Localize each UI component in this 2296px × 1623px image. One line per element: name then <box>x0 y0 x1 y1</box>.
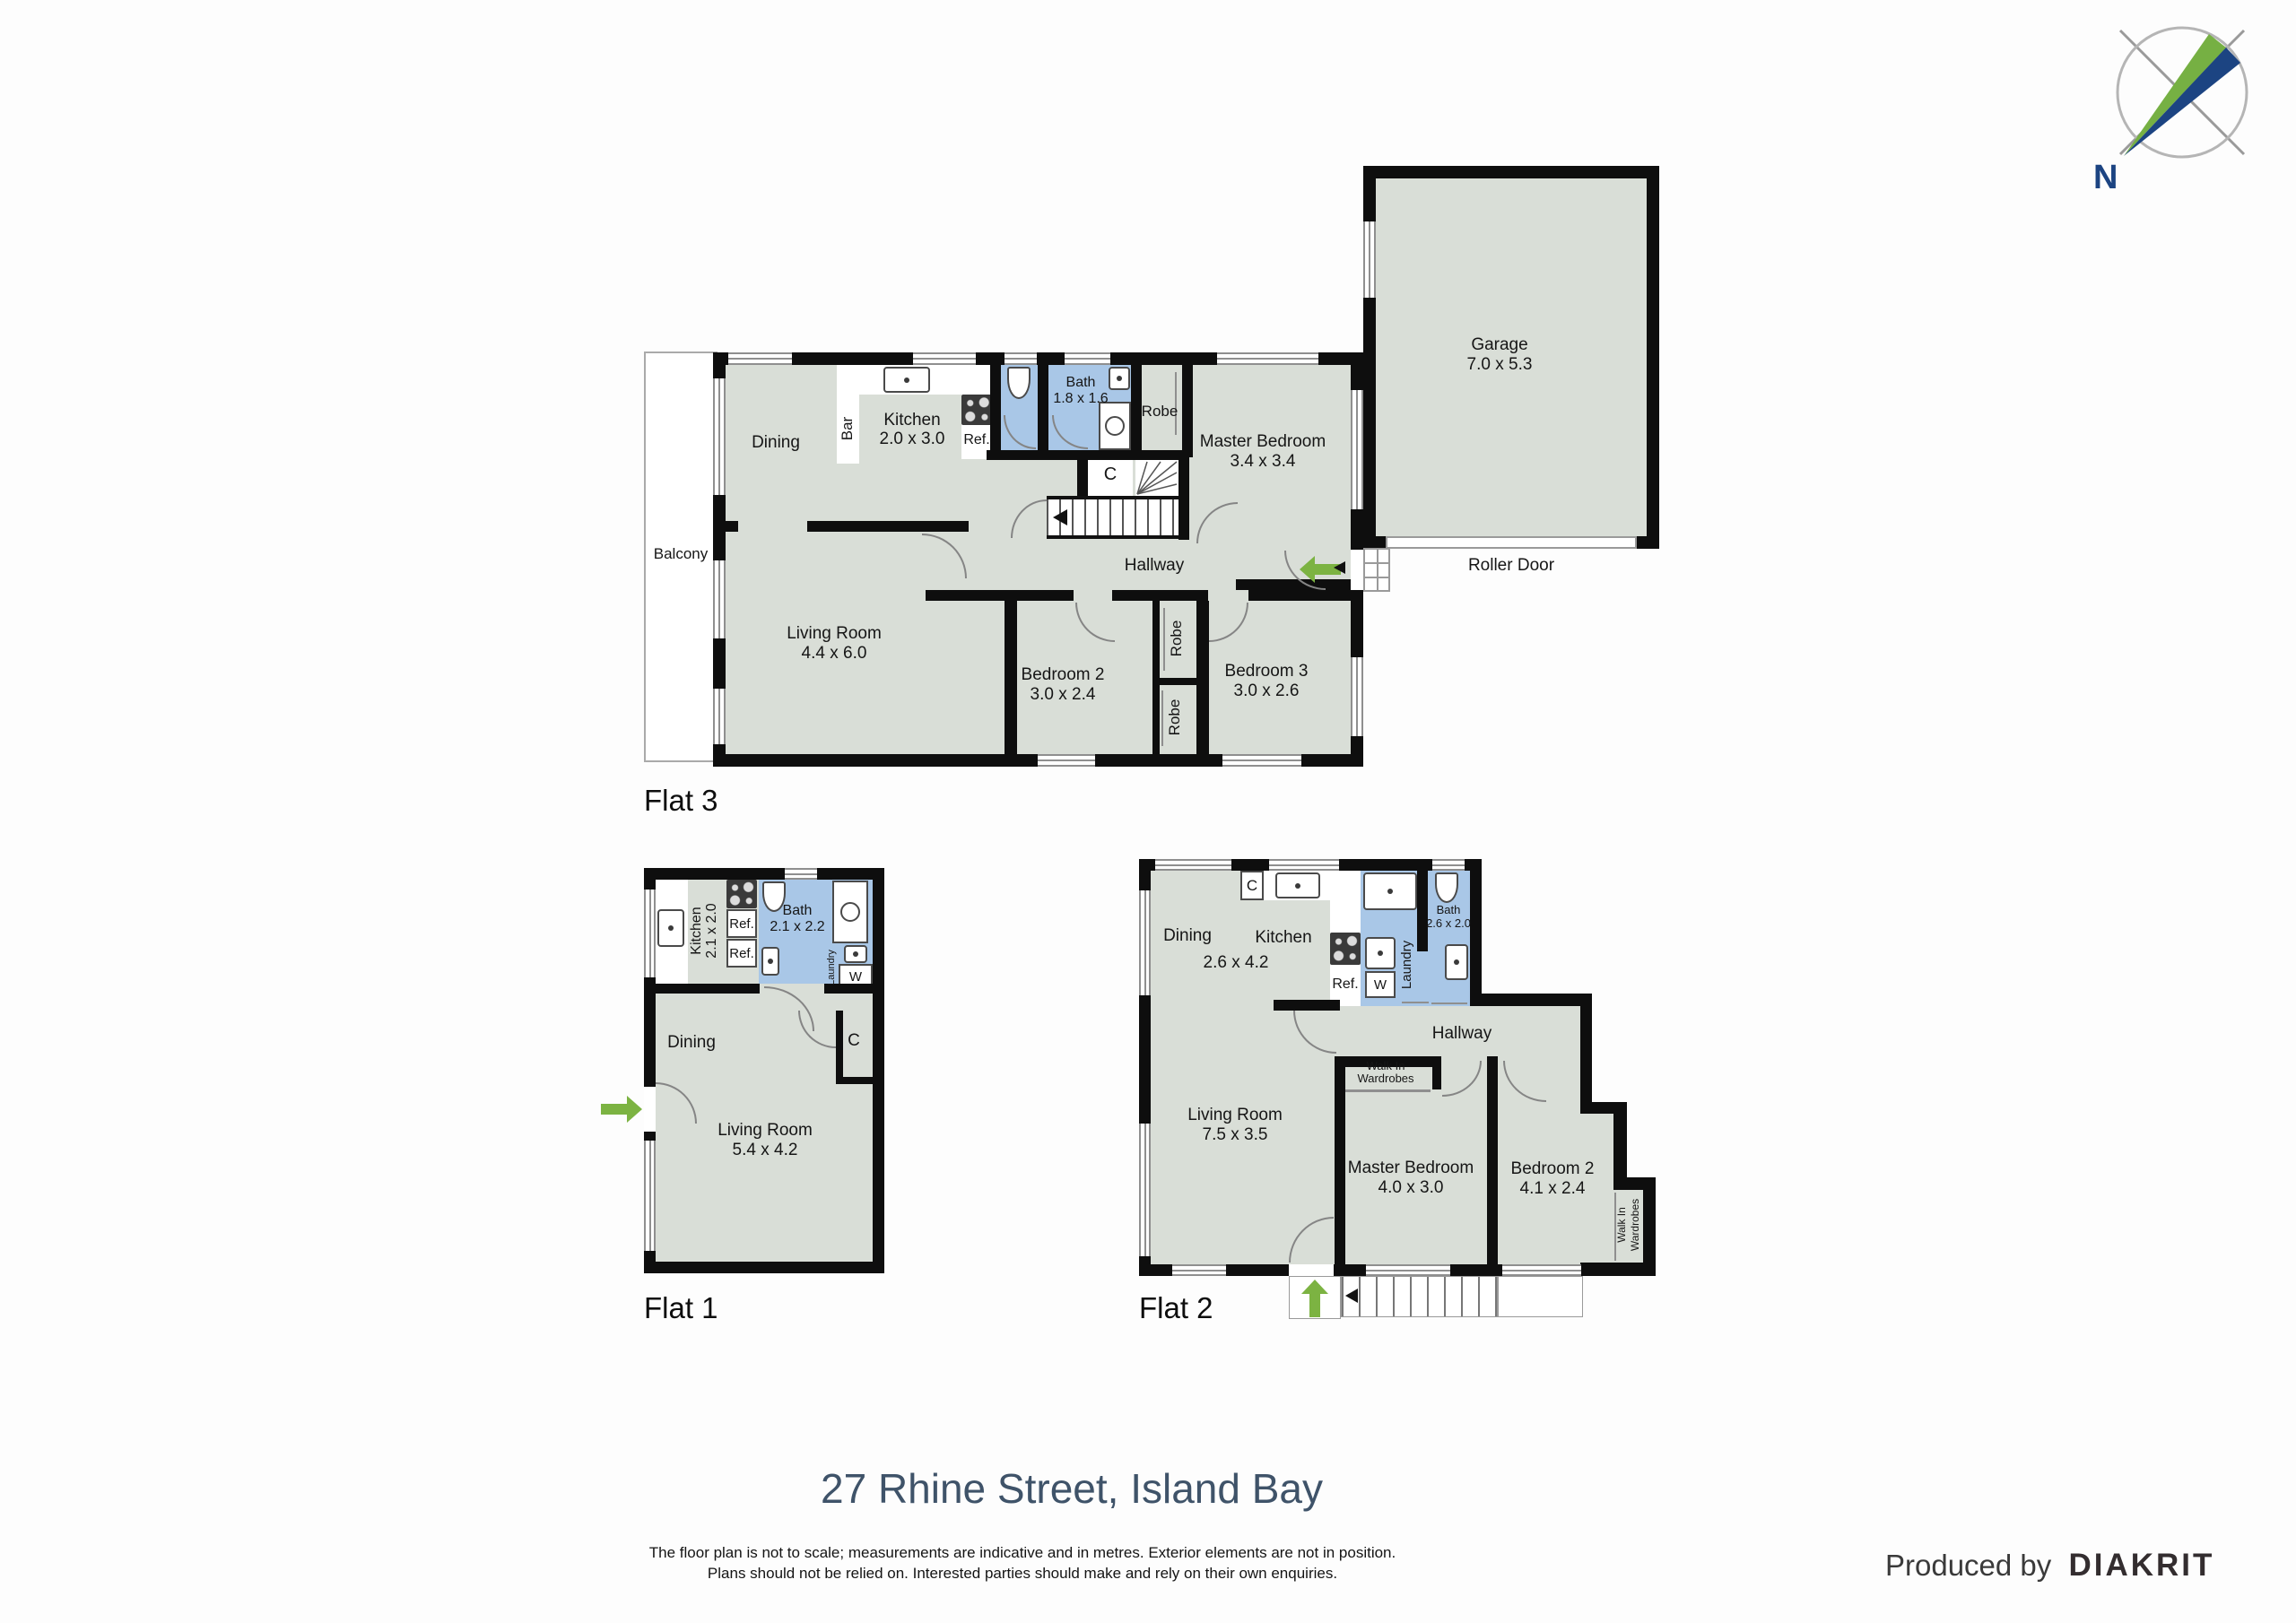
dining-label: Dining <box>647 1033 736 1053</box>
window <box>1217 352 1318 365</box>
shower-icon <box>832 881 868 943</box>
robe-label: Robe <box>1168 603 1186 674</box>
sink-icon <box>1445 944 1468 980</box>
compass-icon: N <box>2088 7 2278 197</box>
bath-label: Bath <box>761 903 833 919</box>
living-room-dims: 4.4 x 6.0 <box>780 644 888 664</box>
window <box>644 1141 656 1251</box>
kitchen-dims: 2.0 x 3.0 <box>858 430 966 449</box>
shower-icon <box>1099 402 1131 450</box>
bath-dims: 1.8 x 1.6 <box>1040 391 1121 407</box>
bedroom3-dims: 3.0 x 2.6 <box>1213 681 1320 701</box>
dining-label: Dining <box>731 433 821 453</box>
balcony-label: Balcony <box>646 545 716 563</box>
robe-slide-line <box>1161 690 1163 746</box>
kitchen-label: Kitchen <box>858 411 966 430</box>
window <box>713 689 726 744</box>
wiw-side-line1: Walk In <box>1615 1199 1629 1251</box>
wall <box>807 521 969 532</box>
wiw-side-line2: Wardrobes <box>1629 1199 1642 1251</box>
hallway-label: Hallway <box>1417 1024 1507 1044</box>
wiw-label: Wardrobes <box>1341 1072 1431 1086</box>
window <box>1351 657 1363 736</box>
window <box>713 560 726 638</box>
wiw-slide-line <box>1345 1089 1431 1092</box>
sink-icon <box>883 367 930 393</box>
robe-label: Robe <box>1166 681 1184 753</box>
stair-direction-arrow <box>1053 509 1067 525</box>
wall <box>722 521 738 532</box>
wall <box>1077 460 1088 496</box>
dining-kitchen-dims: 2.6 x 4.2 <box>1191 953 1281 973</box>
garage-dims: 7.0 x 5.3 <box>1437 355 1562 375</box>
window <box>1366 1264 1450 1276</box>
wall <box>987 450 1178 460</box>
flat2-title: Flat 2 <box>1139 1291 1213 1325</box>
sink-icon <box>844 945 867 963</box>
sink-icon <box>657 909 684 947</box>
window <box>1269 859 1339 871</box>
wall <box>1487 1056 1498 1264</box>
produced-by-text: Produced by <box>1885 1549 2051 1582</box>
flat3-entry-gap <box>1351 550 1363 590</box>
bath-dims: 2.6 x 2.0 <box>1417 917 1480 931</box>
closet-box: C <box>1240 871 1264 900</box>
wall <box>656 984 760 994</box>
master-bedroom-label: Master Bedroom <box>1339 1159 1483 1178</box>
master-bedroom-dims: 4.0 x 3.0 <box>1339 1178 1483 1198</box>
kitchen-label: Kitchen <box>1230 928 1337 948</box>
wall <box>1432 1061 1441 1089</box>
window <box>1004 352 1037 365</box>
compass-n-label: N <box>2093 159 2118 196</box>
floorplan-canvas: Balcony Dining Bar Kitchen 2.0 x 3.0 Ref… <box>0 0 2296 1623</box>
window <box>1502 1264 1581 1276</box>
fridge-box: Ref. <box>726 909 757 938</box>
roller-door-label: Roller Door <box>1448 556 1574 576</box>
wiw-side-label: Walk In Wardrobes <box>1613 1185 1644 1265</box>
wall <box>1248 590 1351 601</box>
wall <box>1274 1000 1340 1011</box>
window <box>713 378 726 495</box>
wall <box>926 590 1074 601</box>
bath-label: Bath <box>1422 904 1475 917</box>
living-room-dims: 7.5 x 3.5 <box>1181 1125 1289 1145</box>
bedroom2-dims: 3.0 x 2.4 <box>1009 685 1117 705</box>
window <box>1363 221 1376 298</box>
wall <box>1178 450 1189 540</box>
entry-steps <box>1363 548 1390 592</box>
window <box>913 352 976 365</box>
living-room-dims: 5.4 x 4.2 <box>711 1141 819 1160</box>
window <box>728 352 792 365</box>
stair-direction-arrow <box>1345 1289 1358 1303</box>
slide-door-line <box>1431 1002 1467 1004</box>
disclaimer-line1: The floor plan is not to scale; measurem… <box>574 1544 1471 1562</box>
closet-label: C <box>831 1031 876 1051</box>
window <box>1155 859 1231 871</box>
window <box>1038 754 1095 767</box>
wall <box>1112 590 1208 601</box>
bath-dims: 2.1 x 2.2 <box>757 919 838 935</box>
bedroom2-dims: 4.1 x 2.4 <box>1499 1179 1606 1199</box>
slide-door-line <box>1402 1002 1429 1003</box>
window <box>1065 352 1110 365</box>
flat3-title: Flat 3 <box>644 784 718 818</box>
garage-label: Garage <box>1437 335 1562 355</box>
laundry-tub-icon <box>1363 872 1417 910</box>
window <box>1222 754 1301 767</box>
window <box>1432 859 1465 871</box>
entry-arrow-icon <box>1301 1280 1328 1317</box>
stairs-landing <box>1498 1276 1583 1317</box>
flat1-entry-gap <box>644 1087 656 1132</box>
washer-box: W <box>1365 971 1396 998</box>
disclaimer-line2: Plans should not be relied on. Intereste… <box>574 1565 1471 1583</box>
robe-slide-line <box>1163 608 1165 671</box>
flat1-title: Flat 1 <box>644 1291 718 1325</box>
address-title: 27 Rhine Street, Island Bay <box>623 1464 1520 1513</box>
stair-direction-arrow <box>1334 561 1345 574</box>
fridge-box: Ref. <box>726 939 757 968</box>
stove-icon <box>726 880 757 908</box>
bedroom3-label: Bedroom 3 <box>1213 662 1320 681</box>
bar-label: Bar <box>839 402 857 456</box>
stairs <box>1341 1276 1498 1317</box>
robe-label: Robe <box>1133 403 1187 421</box>
entry-arrow-icon <box>601 1096 642 1123</box>
stove-icon <box>961 395 993 425</box>
living-room-label: Living Room <box>780 624 888 644</box>
ref-label: Ref. <box>954 432 999 448</box>
produced-by: Produced by DIAKRIT <box>1885 1548 2214 1584</box>
hallway-label: Hallway <box>1109 556 1199 576</box>
laundry-label: Laundry <box>1399 929 1413 1001</box>
sink-icon <box>1365 937 1396 969</box>
stairs-winder <box>1135 460 1178 496</box>
living-room-label: Living Room <box>1181 1106 1289 1125</box>
window <box>644 890 656 977</box>
window <box>1172 1264 1226 1276</box>
sink-icon <box>1275 872 1320 898</box>
kitchen-dims: 2.1 x 2.0 <box>703 895 721 967</box>
closet-label: C <box>1088 464 1133 485</box>
garage-roller-door-opening <box>1386 536 1637 549</box>
master-bedroom-dims: 3.4 x 3.4 <box>1191 452 1335 472</box>
window <box>1139 1124 1151 1256</box>
living-room-label: Living Room <box>711 1121 819 1141</box>
window <box>785 868 817 880</box>
master-bedroom-label: Master Bedroom <box>1191 432 1335 452</box>
dining-label: Dining <box>1143 926 1232 946</box>
bedroom2-label: Bedroom 2 <box>1499 1159 1606 1179</box>
bath-label: Bath <box>1045 375 1117 391</box>
sink-icon <box>761 947 779 976</box>
flat2-entry-gap <box>1289 1264 1334 1276</box>
bedroom2-label: Bedroom 2 <box>1009 665 1117 685</box>
brand-logo: DIAKRIT <box>2068 1548 2214 1583</box>
window <box>1351 390 1363 509</box>
wall <box>836 1077 873 1084</box>
laundry-label: Laundry <box>824 945 839 990</box>
